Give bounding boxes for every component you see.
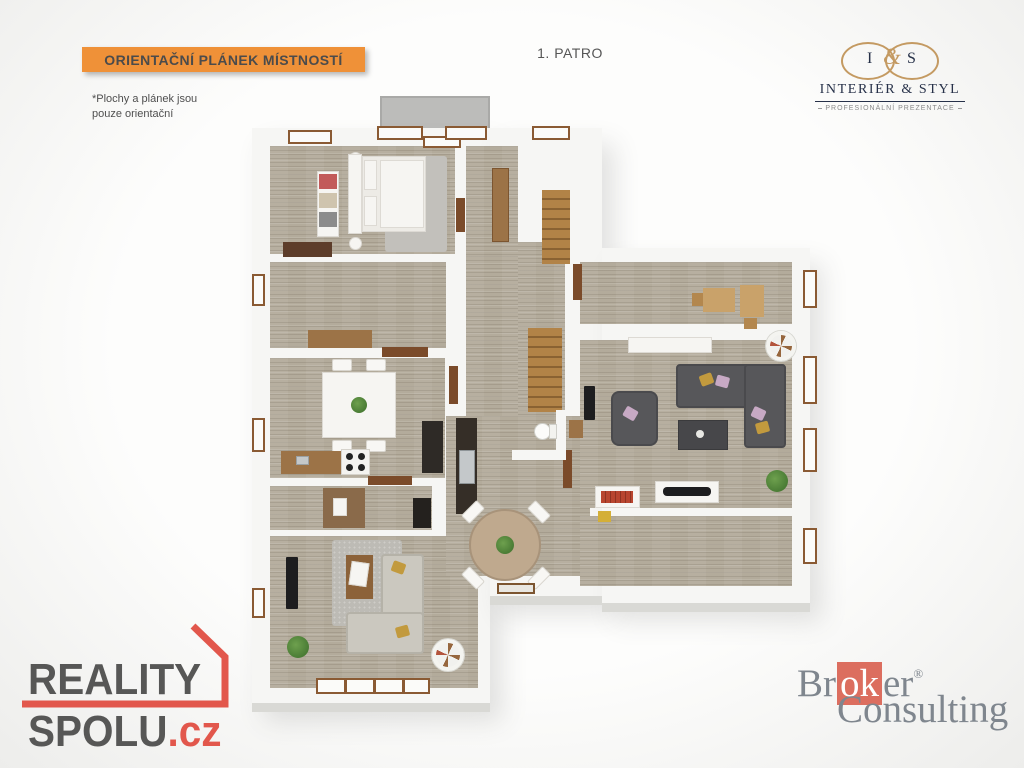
staircase-upper [542, 190, 570, 264]
nightstand-bottom [349, 237, 362, 250]
sofa-left-horizontal [346, 612, 424, 654]
ceiling-fan-right [766, 331, 796, 361]
plant-left-room [287, 636, 309, 658]
window-right-2 [803, 356, 817, 404]
building-base-right [602, 603, 810, 612]
room-corridor-mid [466, 256, 518, 416]
tv-right-room [584, 386, 595, 420]
window-right-3 [803, 428, 817, 472]
dining-chair-2 [366, 359, 386, 371]
bedroom-desk [283, 242, 332, 257]
toilet-tank [549, 424, 557, 439]
window-right-4 [803, 528, 817, 564]
tv-left-room [286, 557, 298, 609]
bed-pillow-bottom [364, 196, 377, 226]
stove [341, 449, 370, 475]
reality-spolu-word1: REALITY [28, 658, 201, 702]
window-top-5 [532, 126, 570, 140]
coffee-table-magazines [348, 561, 369, 587]
plant-right-room [766, 470, 788, 492]
nook-desk-paper [333, 498, 347, 516]
stove-burner-4 [358, 464, 365, 471]
dining-table-plant [351, 397, 367, 413]
room-bottom-right [580, 516, 792, 586]
door-dining [382, 347, 428, 357]
counter-sink [296, 456, 309, 465]
tv-on-stand [663, 487, 711, 496]
window-right-1 [803, 270, 817, 308]
shelf-item-red [319, 174, 337, 189]
office-desk-1 [703, 288, 735, 312]
building-base-left [252, 703, 490, 712]
window-bottom-long [316, 678, 430, 694]
coffee-table-decor [696, 430, 704, 438]
books-red [601, 491, 633, 503]
door-bedroom [456, 198, 465, 232]
stove-burner-2 [358, 453, 365, 460]
broker-prefix: Br [797, 662, 836, 705]
spolu-text: SPOLU [28, 707, 167, 756]
dining-chair-1 [332, 359, 352, 371]
stool-right-room [569, 420, 583, 438]
office-chair-2 [744, 318, 757, 329]
registered-mark: ® [913, 666, 923, 681]
sofa-right-chaise [744, 364, 786, 448]
window-left-3 [252, 588, 265, 618]
shelf-item-gray [319, 212, 337, 227]
bed-duvet [380, 160, 424, 228]
consulting-word: Consulting [837, 690, 1022, 729]
reality-spolu-word2: SPOLU.cz [28, 710, 221, 754]
door-kitchen [368, 476, 412, 485]
stove-burner-3 [346, 464, 353, 471]
hall-bench [492, 168, 509, 242]
kitchen-counter [281, 451, 343, 474]
window-top-1 [288, 130, 332, 144]
sideboard-right [628, 337, 712, 353]
broker-consulting-logo: Broker® Consulting [797, 664, 1022, 729]
door-office [573, 264, 582, 300]
round-table-plant [496, 536, 514, 554]
building-base-middle [490, 596, 602, 605]
spolu-tld: .cz [167, 707, 221, 756]
window-left-2 [252, 418, 265, 452]
stove-burner-1 [346, 453, 353, 460]
island-sink [459, 450, 475, 484]
dishwasher [413, 498, 431, 528]
office-desk-2 [740, 285, 764, 317]
ceiling-fan-left [432, 639, 464, 671]
window-bottom-small [497, 583, 535, 594]
bed-pillow-top [364, 160, 377, 190]
wc-wall-horizontal [512, 450, 566, 460]
fridge [422, 421, 443, 473]
staircase-lower [528, 328, 562, 412]
toy-yellow [598, 511, 611, 522]
window-left-1 [252, 274, 265, 306]
corridor-sideboard [308, 330, 372, 348]
reality-spolu-logo: REALITY SPOLU.cz [20, 618, 235, 758]
window-top-2 [377, 126, 423, 140]
bed-headboard [348, 154, 362, 234]
door-corridor [449, 366, 458, 404]
window-top-4 [445, 126, 487, 140]
office-chair-1 [692, 293, 703, 306]
shelf-item-beige [319, 193, 337, 208]
